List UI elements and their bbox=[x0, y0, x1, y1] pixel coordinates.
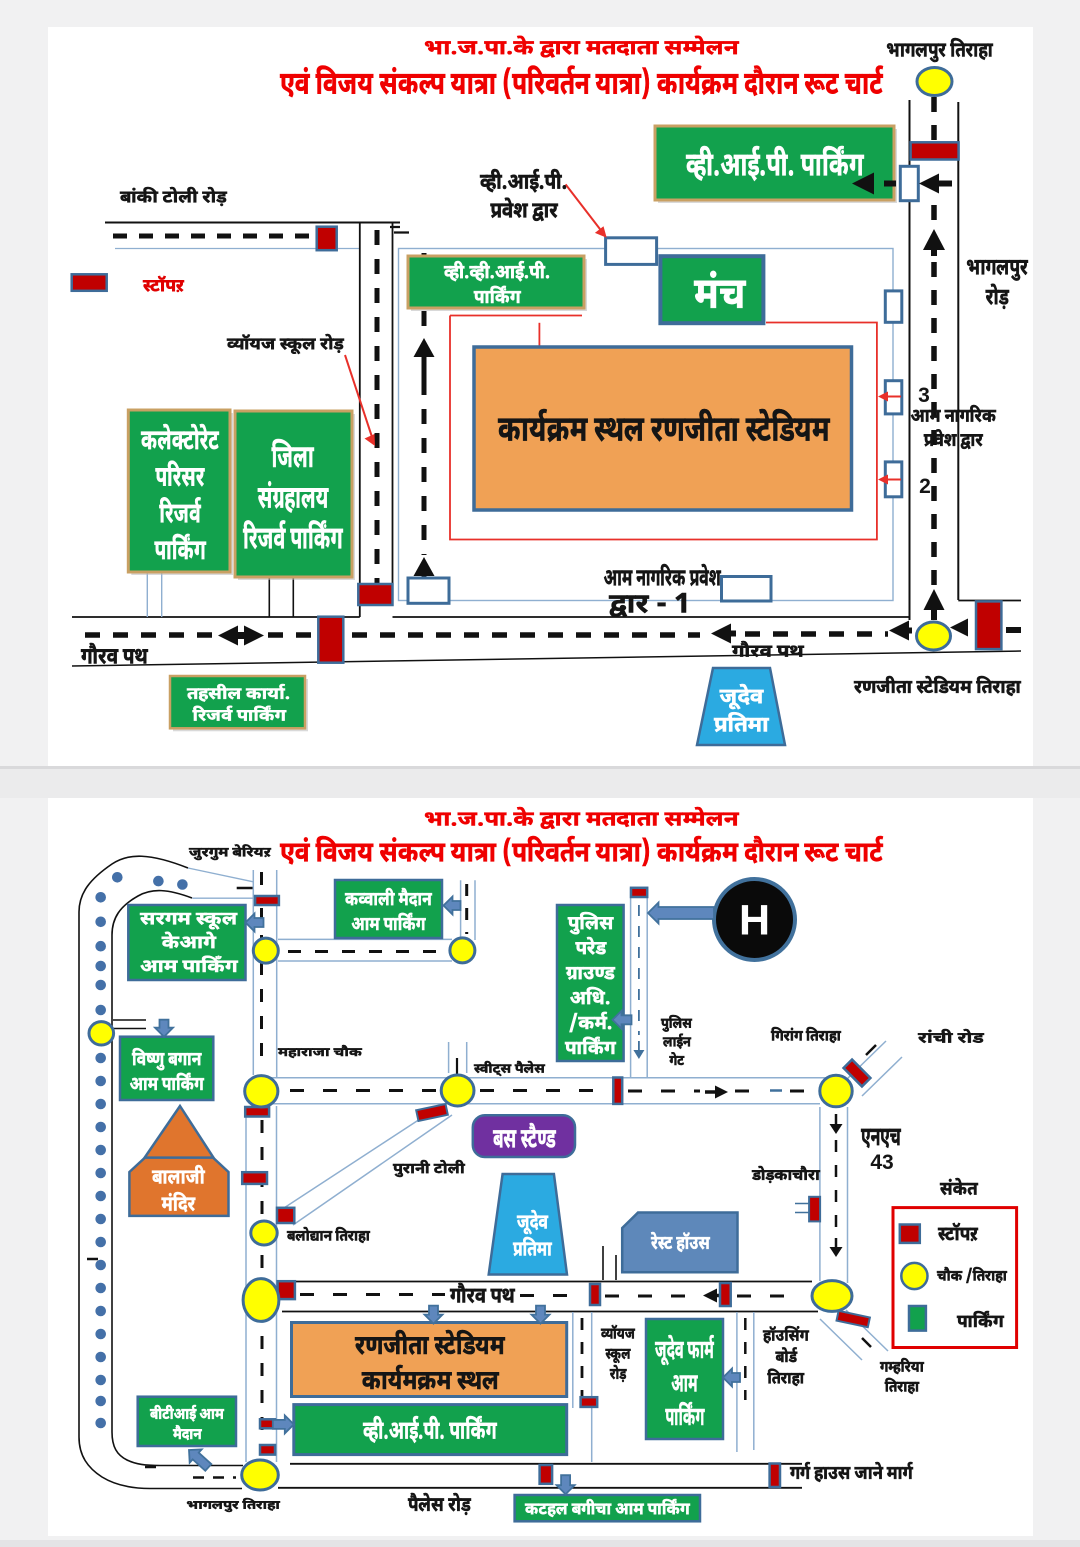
svg-text:2: 2 bbox=[919, 475, 931, 498]
svg-text:43: 43 bbox=[870, 1151, 893, 1174]
svg-text:3: 3 bbox=[918, 384, 930, 407]
svg-text:H: H bbox=[739, 897, 770, 945]
